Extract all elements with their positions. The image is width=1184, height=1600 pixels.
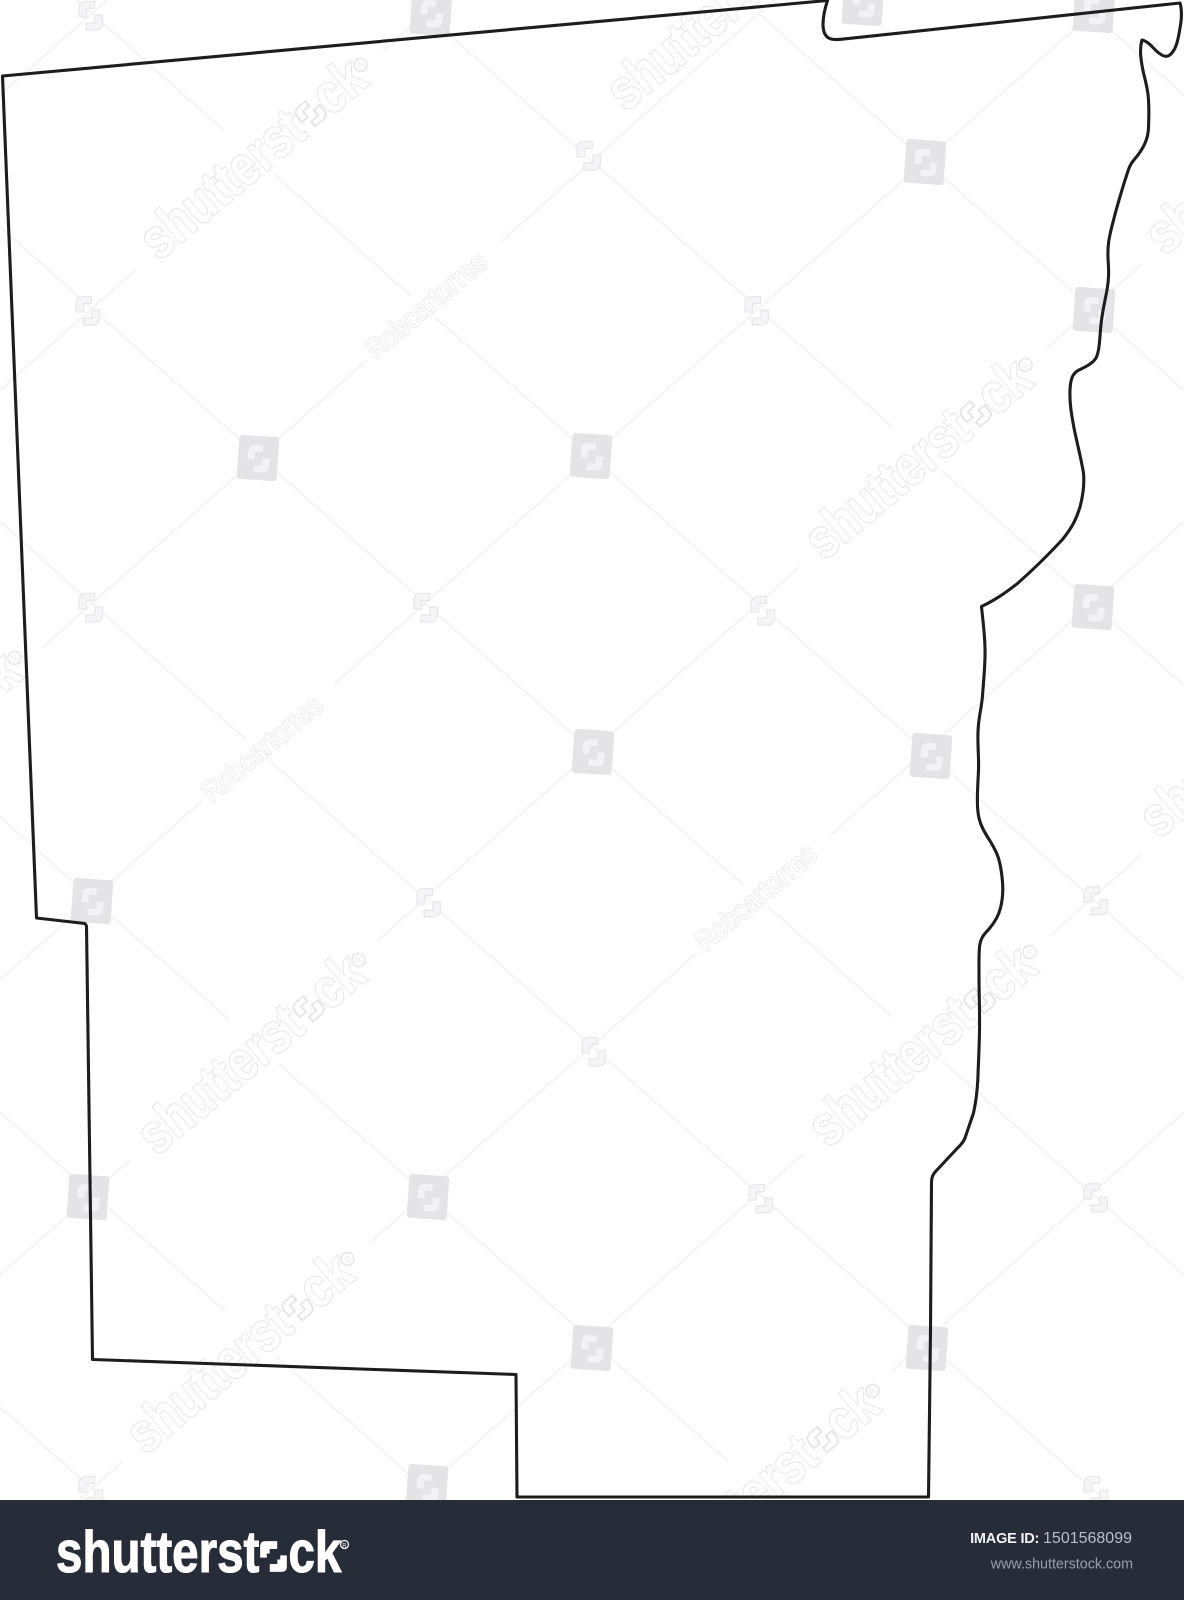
svg-text:IMAGE ID: 1501568099: IMAGE ID: 1501568099 (970, 1530, 1132, 1547)
svg-text:R: R (342, 1543, 347, 1549)
svg-text:ck: ck (288, 1521, 341, 1586)
svg-text:www.shutterstock.com: www.shutterstock.com (990, 1557, 1133, 1573)
svg-text:shutterst: shutterst (56, 1521, 259, 1586)
